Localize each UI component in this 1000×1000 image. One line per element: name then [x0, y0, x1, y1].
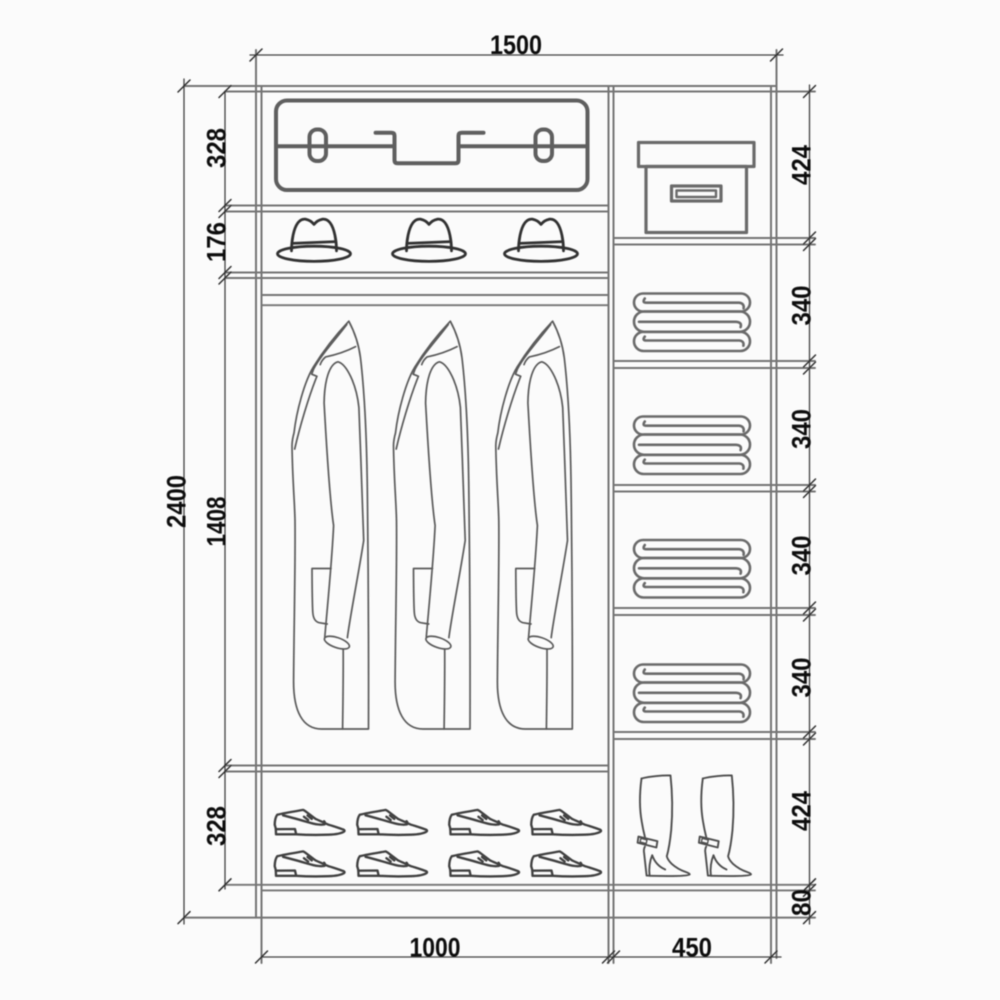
- svg-text:424: 424: [787, 791, 817, 831]
- svg-text:340: 340: [787, 409, 817, 449]
- svg-text:328: 328: [202, 806, 232, 846]
- svg-text:328: 328: [202, 128, 232, 168]
- svg-text:1500: 1500: [490, 30, 542, 60]
- svg-text:340: 340: [787, 286, 817, 326]
- svg-text:2400: 2400: [162, 475, 192, 528]
- svg-text:1408: 1408: [202, 497, 232, 547]
- svg-text:340: 340: [787, 658, 817, 698]
- svg-text:340: 340: [787, 536, 817, 576]
- svg-text:450: 450: [672, 933, 712, 963]
- svg-text:1000: 1000: [410, 933, 461, 963]
- svg-text:80: 80: [787, 889, 817, 916]
- svg-text:424: 424: [787, 145, 817, 185]
- svg-text:176: 176: [202, 222, 232, 262]
